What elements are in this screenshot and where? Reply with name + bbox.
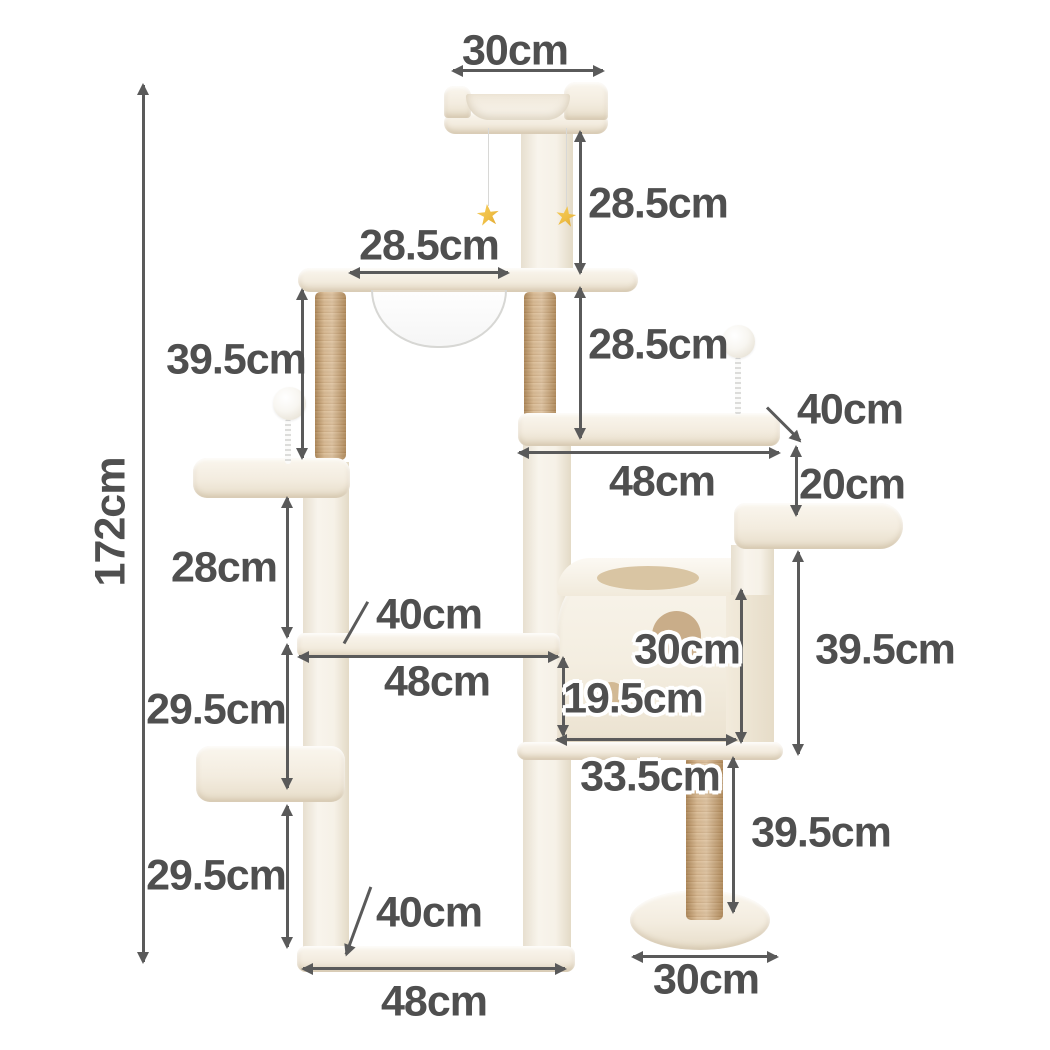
dim-upper-platform-width-label: 28.5cm: [359, 225, 499, 268]
dim-base-width-label: 48cm: [381, 981, 487, 1024]
dim-upper-right-tier-label: 28.5cm: [588, 324, 728, 367]
dim-bottom-post-height-arrow: [732, 758, 735, 912]
acrylic-capsule-bowl: [371, 290, 507, 348]
dim-right-platform-depth-label: 40cm: [797, 389, 903, 432]
right-upper-platform: [518, 413, 780, 446]
left-sisal-post: [315, 292, 346, 460]
mid-left-platform: [193, 458, 350, 498]
dim-bottom-post-height-label: 39.5cm: [751, 812, 891, 855]
top-perch-right-rim: [564, 82, 608, 120]
dim-left-tier4-arrow: [286, 645, 289, 788]
dim-total-height-label: 172cm: [90, 458, 133, 587]
lower-left-platform: [196, 746, 345, 802]
pompom-spring-left: [285, 419, 291, 464]
dim-right-step-height-label: 20cm: [799, 464, 905, 507]
dim-upper-left-post-label: 39.5cm: [166, 339, 306, 382]
condo-top-hole: [597, 566, 699, 590]
left-tower-post: [303, 462, 349, 950]
dim-left-tier3-arrow: [286, 498, 289, 637]
dim-condo-right-height-label: 39.5cm: [815, 629, 955, 672]
right-step-platform: [734, 503, 903, 549]
dim-upper-platform-width-arrow: [350, 271, 508, 274]
dim-right-platform-width-label: 48cm: [609, 461, 715, 504]
dim-condo-height-label: 30cm: [634, 629, 740, 672]
dim-left-tier5-label: 29.5cm: [146, 855, 286, 898]
pompom-spring-right: [735, 357, 741, 415]
dim-right-step-height-arrow: [795, 447, 798, 515]
dim-condo-right-height-arrow: [797, 552, 800, 754]
dim-condo-width-arrow: [557, 738, 736, 741]
dim-total-height-arrow: [142, 85, 145, 962]
dim-top-tier-height-label: 28.5cm: [588, 183, 728, 226]
cat-tree-dimension-diagram: 172cm 30cm 28.5cm 28.5cm 39.5cm 28.5cm 4…: [0, 0, 1050, 1050]
dim-base-platform-depth-label: 40cm: [376, 892, 482, 935]
dim-left-tier5-arrow: [286, 806, 289, 947]
dim-condo-width-label: 33.5cm: [580, 756, 720, 799]
star-string-left: [488, 128, 490, 206]
dim-condo-door-height-label: 19.5cm: [563, 678, 703, 721]
dim-top-tier-height-arrow: [579, 132, 582, 273]
dim-right-platform-width-arrow: [519, 451, 779, 454]
top-perch-bowl: [466, 94, 570, 120]
dim-middle-platform-depth-label: 40cm: [376, 594, 482, 637]
dim-upper-right-tier-arrow: [579, 288, 582, 438]
dim-base-width-arrow: [303, 967, 565, 970]
dim-left-tier3-label: 28cm: [171, 547, 277, 590]
right-sisal-post: [524, 292, 556, 420]
star-string-right: [566, 128, 568, 208]
dim-left-tier4-label: 29.5cm: [146, 689, 286, 732]
dim-top-perch-width-label: 30cm: [462, 30, 568, 73]
dim-middle-platform-width-label: 48cm: [384, 661, 490, 704]
dim-round-base-width-label: 30cm: [653, 959, 759, 1002]
